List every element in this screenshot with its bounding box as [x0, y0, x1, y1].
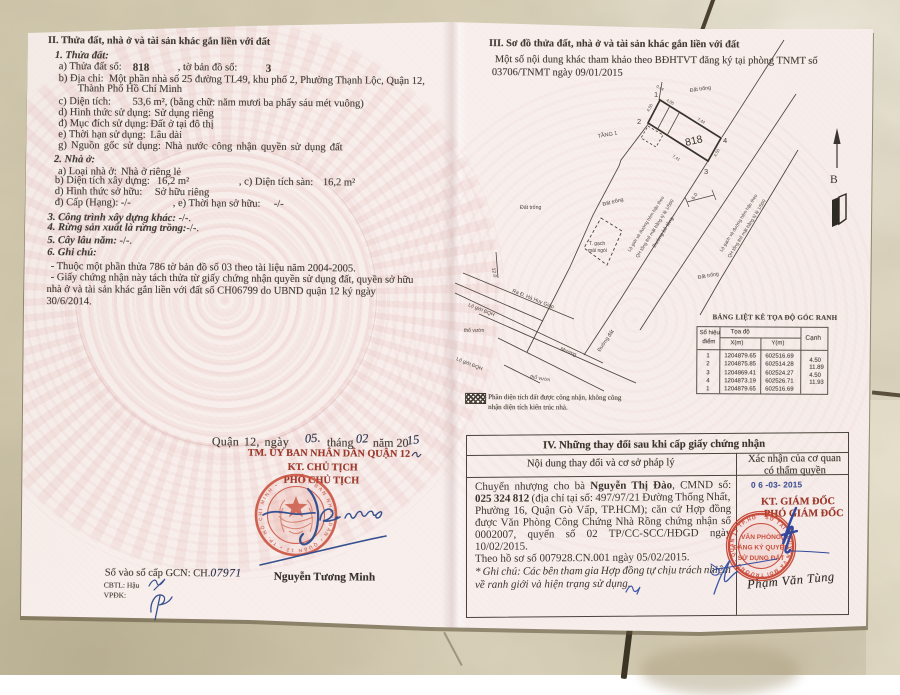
svg-text:SỞ TÀI NGUYÊN VÀ MÔI TRƯỜNG •: SỞ TÀI NGUYÊN VÀ MÔI TRƯỜNG • QUẬN 12 TP…: [0, 0, 794, 578]
svg-text:VĂN PHÒNG: VĂN PHÒNG: [741, 532, 781, 541]
